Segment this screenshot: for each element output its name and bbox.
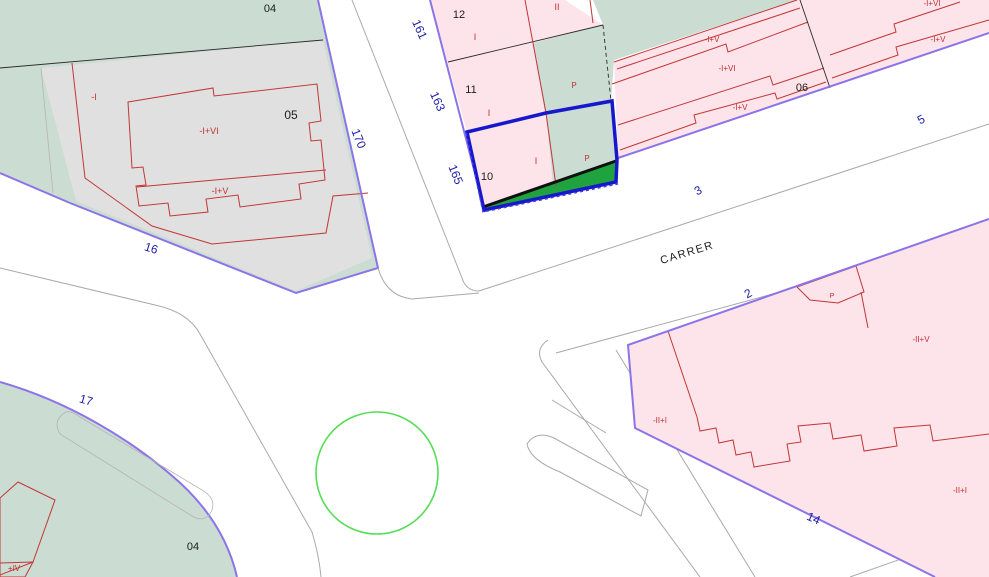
sw-parcel-area [0, 382, 237, 577]
map-label-ii: II [554, 2, 559, 12]
map-label-11: 11 [465, 84, 476, 96]
map-label-05: 05 [284, 108, 298, 122]
street-corner-curve [378, 268, 479, 299]
parcel-block-sw [0, 382, 237, 577]
map-label-carrer: CARRER [659, 239, 716, 267]
map-label-3: 3 [692, 183, 705, 199]
map-label--i-vi: -I+VI [923, 0, 940, 8]
map-label--ii-i: -II+I [653, 416, 667, 425]
map-label-10: 10 [481, 171, 493, 183]
map-label-p: P [584, 154, 589, 163]
map-label-5: 5 [915, 112, 928, 128]
map-label-161: 161 [409, 17, 430, 41]
map-label-04: 04 [187, 541, 199, 553]
map-label-04: 04 [264, 3, 276, 15]
map-label--i: -I [91, 92, 97, 102]
traffic-island [527, 435, 648, 516]
map-label--i-v: -I+V [705, 35, 721, 44]
roundabout-circle [316, 412, 438, 534]
map-label--i-v: -I+V [212, 186, 229, 196]
map-label--i-v: -I+V [733, 103, 749, 112]
map-label-i: I [474, 32, 477, 42]
map-label-06: 06 [796, 82, 808, 94]
map-label-p: P [830, 293, 835, 300]
map-label--i-vi: -I+VI [199, 126, 218, 136]
map-label-p: P [571, 81, 576, 90]
lane-marking [552, 400, 606, 433]
map-label--ii-v: -II+V [912, 335, 930, 344]
map-label--i-vi: -I+VI [718, 64, 735, 73]
map-label--iv: +IV [8, 564, 21, 573]
map-label-12: 12 [453, 9, 465, 21]
map-label-165: 165 [445, 163, 466, 187]
cadastral-map: 04-I05-I+VI-I+V161704+IV16116316517012II… [0, 0, 989, 577]
cadastral-map-viewport: 04-I05-I+VI-I+V161704+IV16116316517012II… [0, 0, 989, 577]
map-label-163: 163 [427, 89, 448, 113]
map-label-16: 16 [143, 239, 160, 257]
map-label-i: I [535, 156, 538, 166]
map-label-2: 2 [742, 286, 755, 302]
nw-unbuilt-area [41, 40, 372, 291]
map-label-i: I [488, 108, 491, 118]
map-label-17: 17 [78, 392, 95, 409]
map-label--ii-i: -II+I [953, 486, 967, 495]
map-label--i-v: -I+V [931, 35, 947, 44]
parcel-block-nw [0, 0, 378, 293]
